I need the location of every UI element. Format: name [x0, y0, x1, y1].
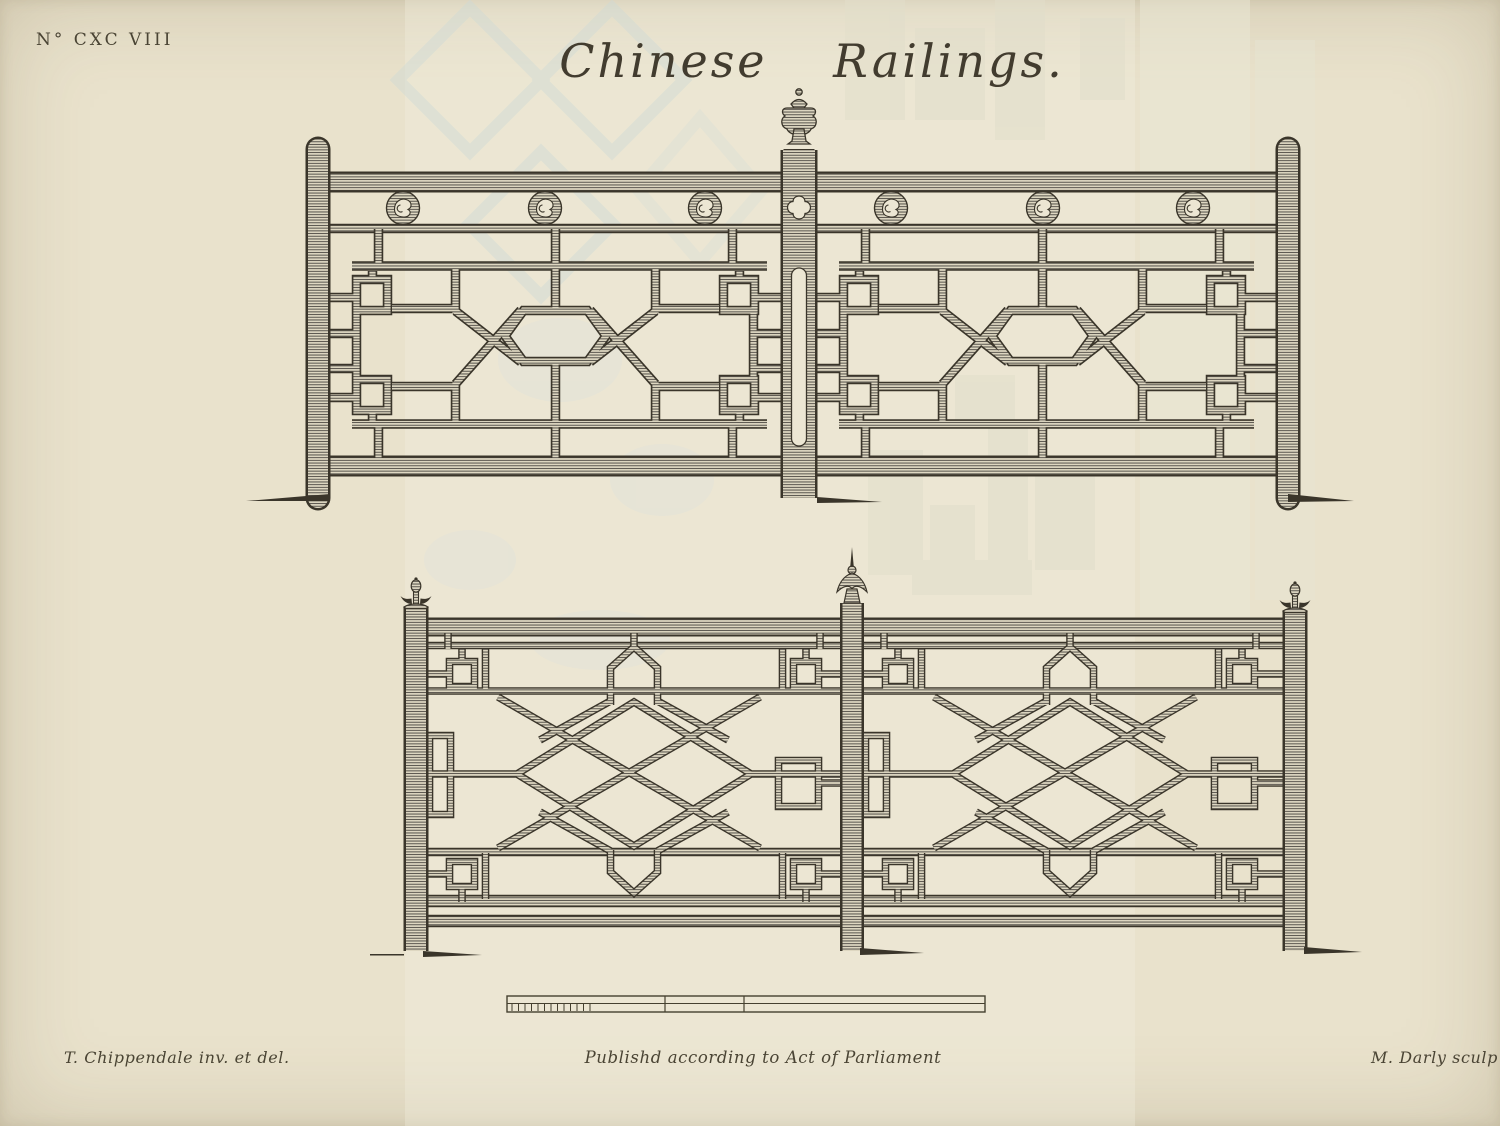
imprint-line: Publishd according to Act of Parliament — [585, 1048, 942, 1067]
engraving-plate: N° CXC VIII Chinese Railings. T. Chippen… — [0, 0, 1500, 1126]
credit-inventor: T. Chippendale inv. et del. — [64, 1048, 290, 1067]
credit-engraver: M. Darly sculp — [1371, 1048, 1498, 1067]
plate-number: N° CXC VIII — [36, 30, 173, 50]
paper-showthrough — [398, 0, 1315, 1126]
railings-artwork — [0, 0, 1500, 1126]
plate-title: Chinese Railings. — [559, 34, 1064, 88]
centre-post-slot — [792, 268, 807, 446]
scale-bar — [507, 996, 985, 1012]
